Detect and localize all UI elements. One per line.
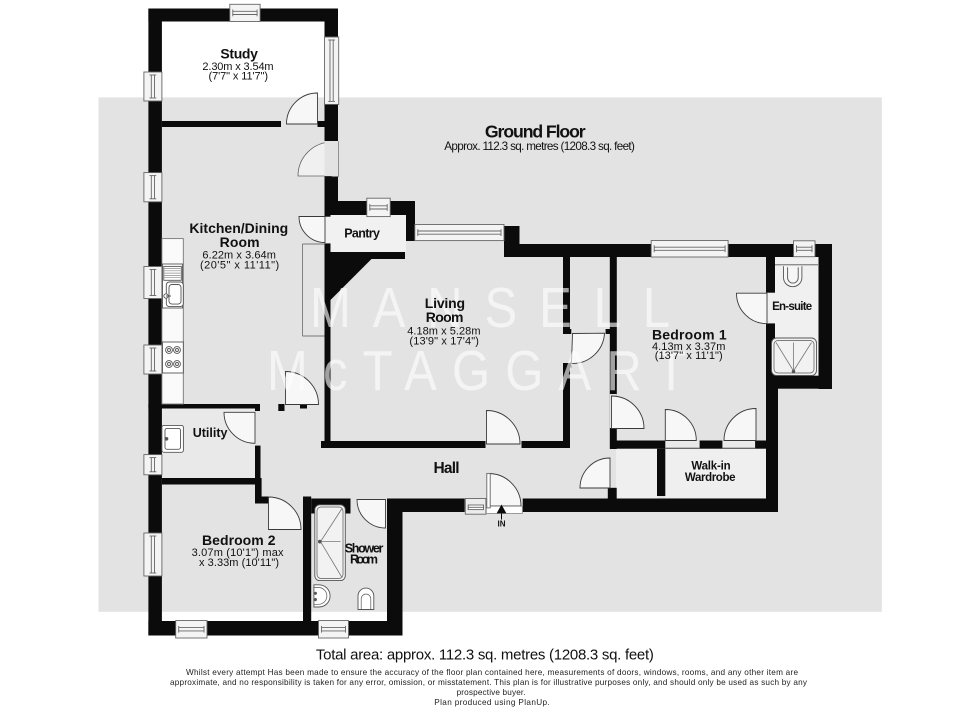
svg-text:Bedroom 2: Bedroom 2	[202, 532, 276, 548]
svg-text:prospective buyer.: prospective buyer.	[457, 688, 526, 697]
svg-text:Approx. 112.3 sq. metres (1208: Approx. 112.3 sq. metres (1208.3 sq. fee…	[444, 140, 635, 153]
svg-text:(13'7" x 11'1"): (13'7" x 11'1")	[655, 350, 723, 362]
svg-text:Whilst every attempt Has been: Whilst every attempt Has been made to en…	[186, 668, 798, 677]
svg-text:Wardrobe: Wardrobe	[685, 472, 736, 484]
svg-text:En-suite: En-suite	[772, 301, 812, 313]
svg-text:Ground Floor: Ground Floor	[485, 122, 586, 142]
svg-text:Room: Room	[350, 553, 378, 567]
svg-text:Walk-in: Walk-in	[691, 461, 730, 473]
svg-text:(20'5" x 11'11"): (20'5" x 11'11")	[200, 259, 279, 271]
svg-text:Study: Study	[220, 46, 258, 62]
svg-text:Pantry: Pantry	[344, 226, 380, 240]
svg-text:(7'7" x 11'7"): (7'7" x 11'7")	[209, 71, 269, 83]
svg-text:Utility: Utility	[193, 426, 228, 440]
svg-text:Total area: approx. 112.3 sq.: Total area: approx. 112.3 sq. metres (12…	[316, 646, 654, 663]
svg-text:(13'9" x 17'4"): (13'9" x 17'4")	[409, 336, 479, 348]
svg-text:Hall: Hall	[434, 460, 460, 477]
svg-text:Room: Room	[220, 234, 260, 250]
svg-text:Room: Room	[426, 309, 464, 325]
svg-text:IN: IN	[498, 520, 506, 529]
svg-text:Plan produced using PlanUp.: Plan produced using PlanUp.	[434, 698, 549, 707]
svg-text:McTAGGART: McTAGGART	[267, 340, 686, 403]
svg-text:approximate, and no responsibi: approximate, and no responsibility is ta…	[170, 678, 808, 687]
svg-text:x 3.33m (10'11"): x 3.33m (10'11")	[199, 557, 279, 569]
